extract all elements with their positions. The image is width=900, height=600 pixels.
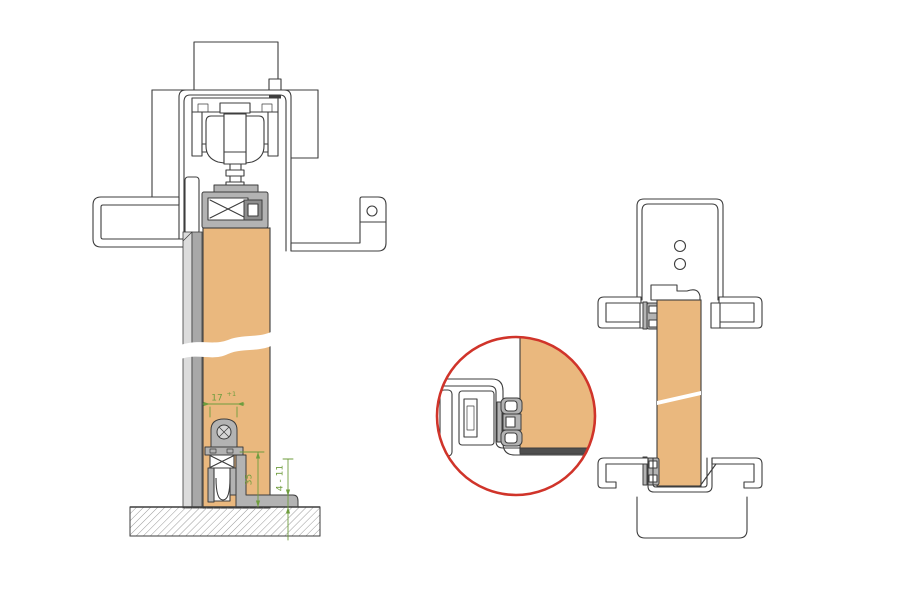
receiver-brace-line	[700, 464, 716, 486]
jamb-channel-slot	[464, 399, 477, 437]
seal-flange	[205, 447, 243, 455]
dimension-tolerance-label: +1	[227, 390, 237, 398]
door-bottom-seal-strip	[520, 448, 602, 454]
wall-bracket-right	[291, 197, 386, 251]
floor-hatch	[130, 507, 320, 536]
vertical-section-view: 17 +1 35 4 - 11	[93, 42, 386, 540]
bracket-profile	[291, 197, 386, 251]
liner-profile	[185, 177, 199, 234]
clamp-lock-slot	[248, 204, 258, 216]
jamb-bracket-top-left	[598, 297, 649, 328]
roller-wheel-right	[246, 116, 264, 163]
screw-hole-icon	[675, 259, 686, 270]
wall-strip-dark	[192, 232, 202, 508]
bracket-profile	[712, 458, 762, 488]
track-side-wall	[192, 112, 202, 156]
ceiling-bracket	[194, 42, 278, 90]
jamb-bracket-bottom-right	[712, 458, 762, 488]
carriage-body	[224, 114, 246, 164]
detail-content	[432, 330, 602, 456]
bracket-clip	[269, 79, 281, 90]
hanger-bolt-segment	[226, 170, 244, 176]
latch-slot	[649, 306, 657, 313]
bracket-profile	[598, 458, 648, 488]
track-side-wall	[268, 112, 278, 156]
carriage-top-plate	[220, 103, 250, 113]
drawing-svg: 17 +1 35 4 - 11	[0, 0, 900, 600]
screw-hole-icon	[367, 206, 377, 216]
seal-side-wall	[230, 468, 236, 495]
roller-carriage	[206, 103, 264, 187]
latch-slot	[649, 320, 657, 327]
seal-gasket	[216, 478, 230, 500]
screw-hole-icon	[675, 241, 686, 252]
roller-wheel-left	[206, 116, 224, 163]
hanger-bolt-segment	[230, 176, 241, 182]
wall-edge-strip	[183, 232, 202, 508]
dimension-label: 4 - 11	[276, 465, 286, 491]
door-latch-detail	[497, 398, 522, 446]
hanger-bolt-segment	[230, 164, 241, 170]
latch-plate	[643, 302, 647, 329]
latch-hook-slot	[505, 401, 517, 411]
jamb-bracket-top-right	[711, 297, 762, 328]
pocket-frame	[628, 199, 732, 300]
wall-strip-light	[183, 232, 192, 508]
latch-body-slot	[506, 417, 515, 427]
door-clamp-rail	[202, 185, 268, 228]
dimension-label: 17	[211, 394, 222, 404]
latch-hook-slot	[505, 433, 517, 443]
jamb-upright	[711, 303, 720, 328]
dimension-label: 35	[245, 474, 255, 485]
jamb-bracket-bottom-left	[598, 458, 648, 488]
wall-bracket-left	[93, 197, 186, 247]
floor	[130, 507, 320, 536]
door-edge-cap	[651, 285, 700, 300]
technical-drawing-canvas: 17 +1 35 4 - 11	[0, 0, 900, 600]
jamb-post-outline	[637, 497, 747, 538]
detail-callout	[432, 330, 602, 495]
seal-side-wall	[208, 468, 214, 502]
horizontal-section-view	[598, 199, 762, 538]
